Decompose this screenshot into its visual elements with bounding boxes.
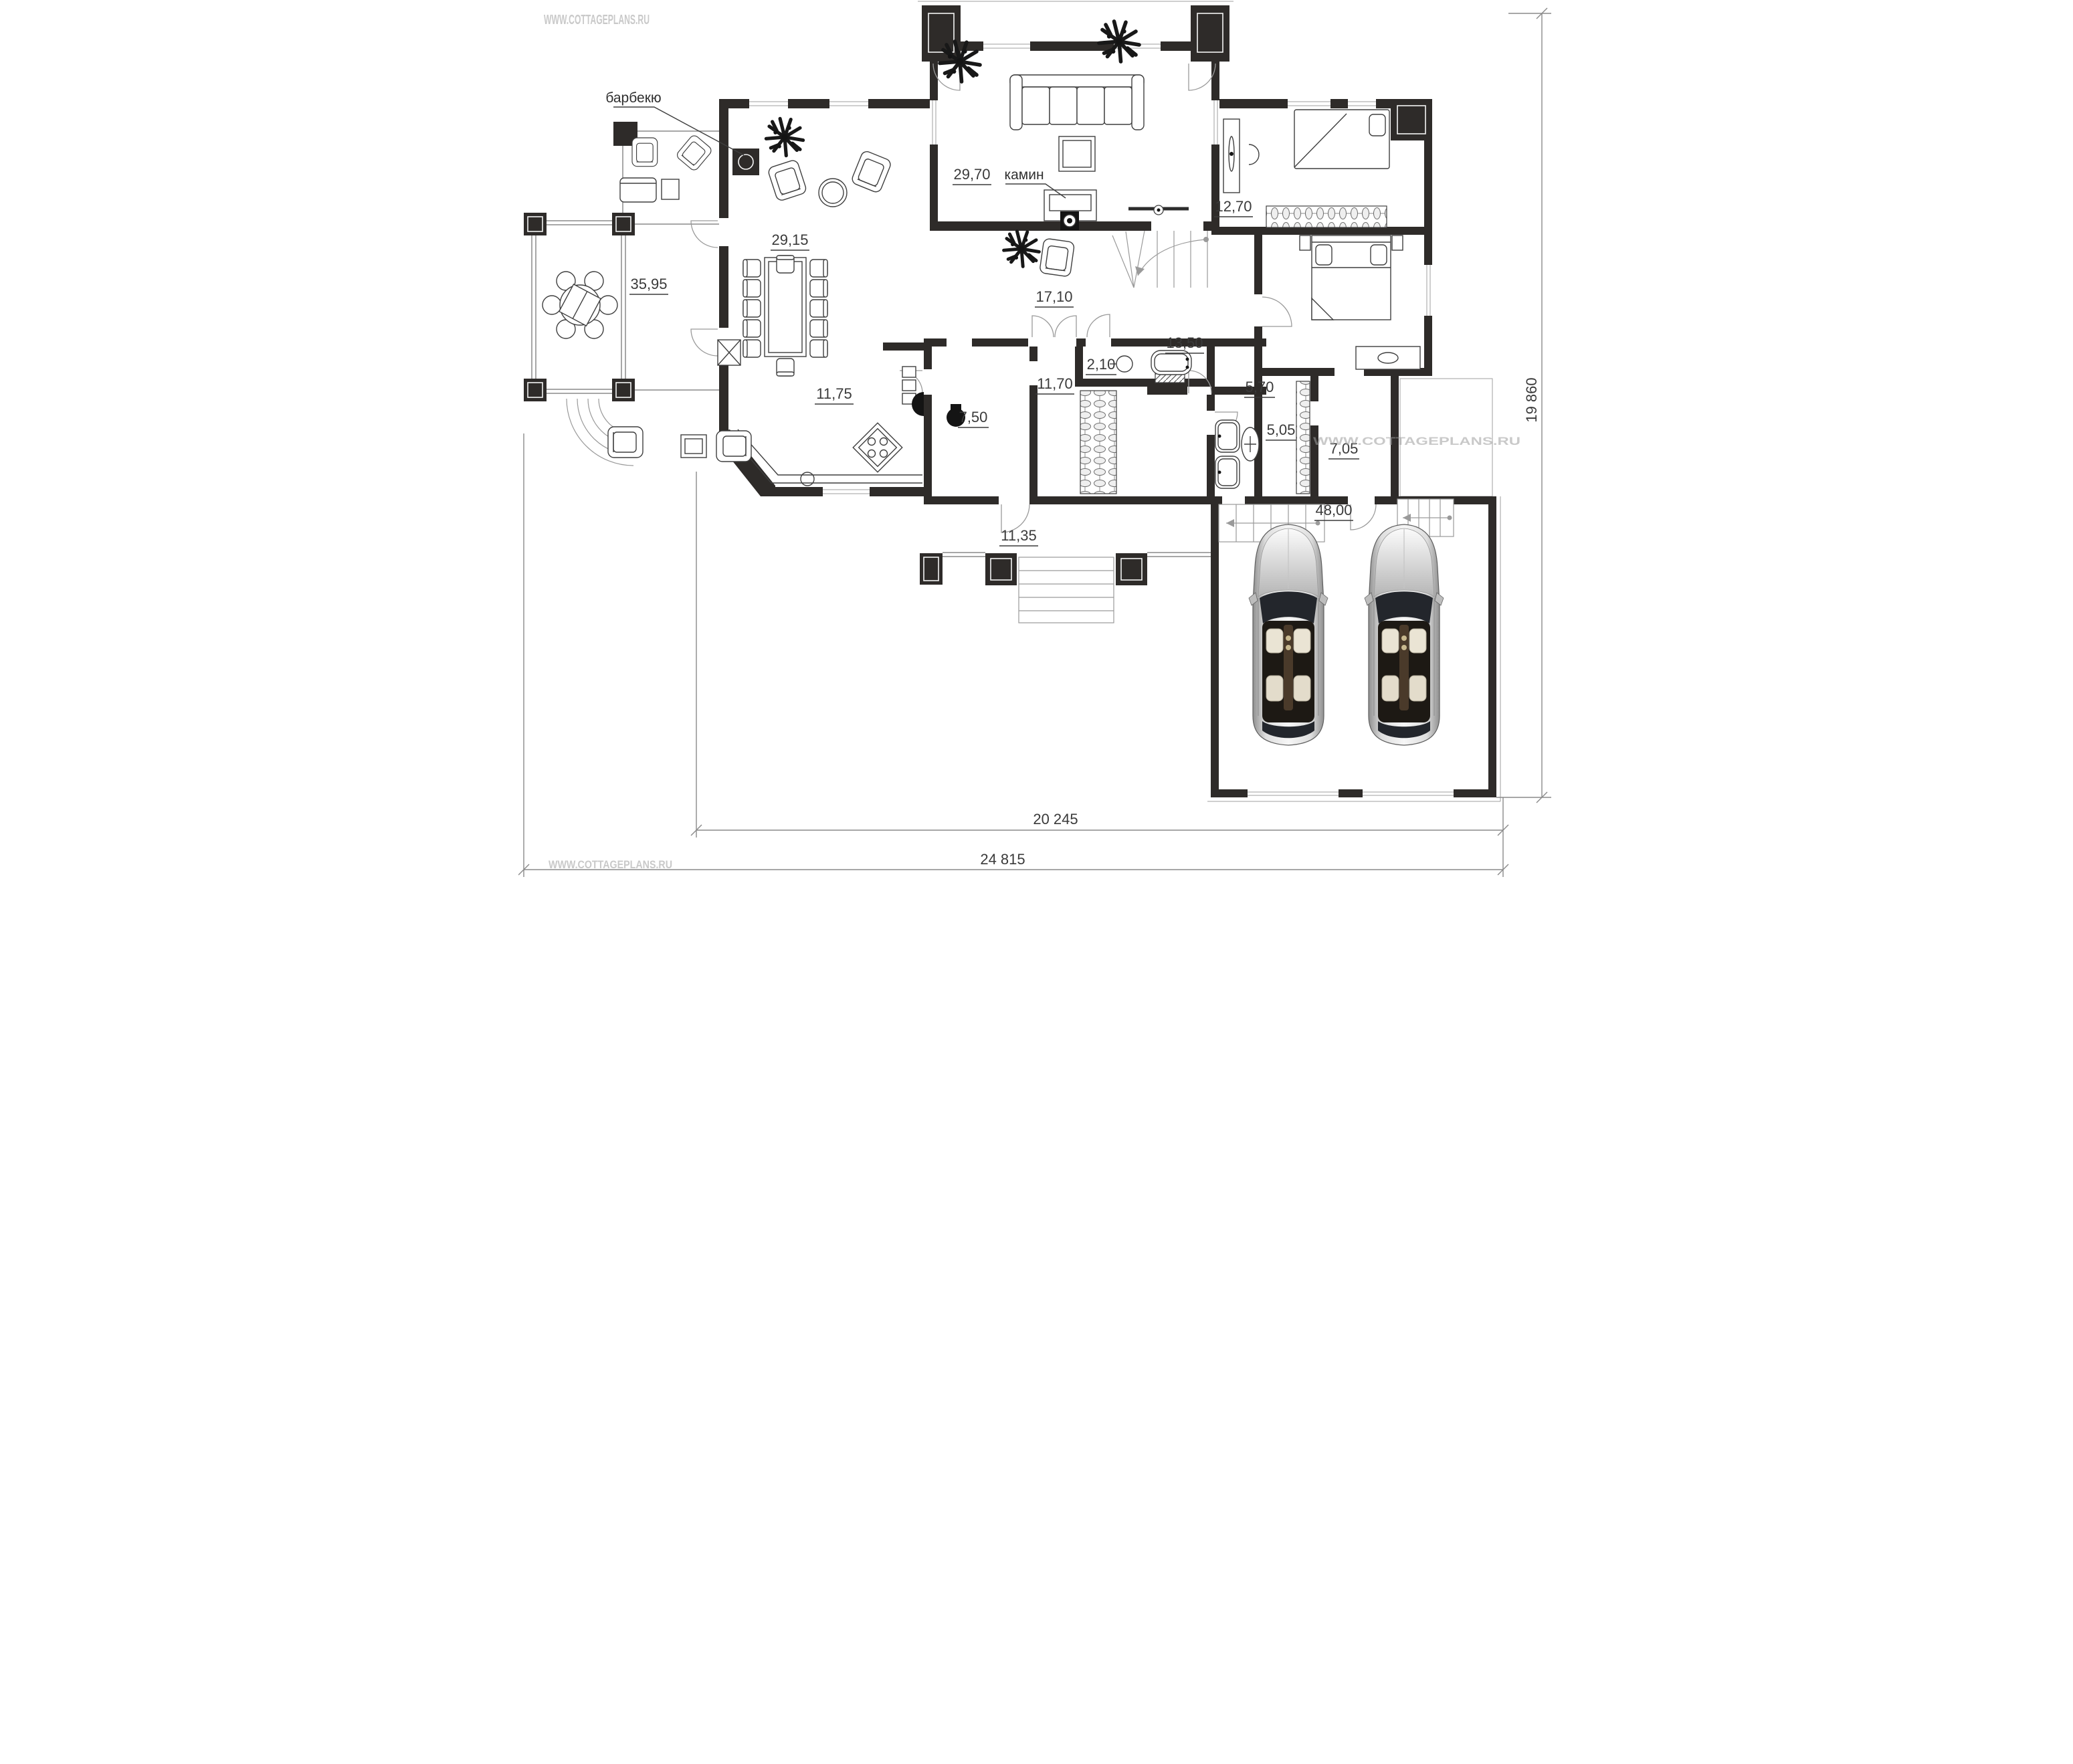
room-area-garage: 48,00 bbox=[1314, 502, 1353, 520]
svg-text:11,75: 11,75 bbox=[816, 385, 852, 402]
bedroom-furniture bbox=[1155, 235, 1420, 383]
barbecue-terrace-furniture bbox=[620, 134, 713, 202]
room-area-music-room: 29,70 bbox=[953, 166, 991, 185]
garage-contents bbox=[1219, 504, 1444, 745]
room-area-wc: 2,10 bbox=[1086, 356, 1116, 375]
sink-cabinet bbox=[718, 340, 741, 365]
stove bbox=[853, 423, 902, 472]
single-bed bbox=[1294, 110, 1389, 169]
dimension-outer-width-value: 24 815 bbox=[980, 851, 1025, 868]
watermark-top-left: WWW.COTTAGEPLANS.RU bbox=[544, 13, 650, 27]
bathroom-fixtures bbox=[1215, 420, 1259, 488]
main-staircase bbox=[1112, 231, 1209, 288]
room-area-corridor: 5,05 bbox=[1266, 421, 1296, 440]
room-area-utility: 11,70 bbox=[1035, 375, 1074, 394]
living-dining-furniture bbox=[743, 118, 892, 376]
double-bed bbox=[1312, 235, 1391, 320]
svg-text:11,70: 11,70 bbox=[1037, 375, 1072, 392]
outdoor-table bbox=[662, 179, 679, 199]
garden-seating bbox=[608, 427, 751, 462]
svg-text:11,35: 11,35 bbox=[1001, 527, 1036, 544]
corridor-wardrobe bbox=[1296, 381, 1310, 494]
wc-fixtures bbox=[1110, 351, 1191, 375]
dimension-inner-width-value: 20 245 bbox=[1033, 811, 1078, 827]
svg-text:2,10: 2,10 bbox=[1086, 356, 1115, 373]
svg-text:17,10: 17,10 bbox=[1035, 288, 1072, 305]
room-area-bathroom: 5,70 bbox=[1244, 379, 1275, 397]
svg-text:5,70: 5,70 bbox=[1245, 379, 1274, 395]
room-area-bedroom: 13,50 bbox=[1165, 334, 1204, 353]
tv-unit bbox=[1128, 205, 1189, 215]
dimension-right-height-value: 19 860 bbox=[1523, 377, 1540, 422]
fireplace-label: камин bbox=[1004, 167, 1044, 183]
plant-icon bbox=[1003, 231, 1039, 267]
floor-plan-cottage: барбекю камин 29,70 12,70 29,15 35,95 17… bbox=[518, 0, 1555, 882]
outdoor-sofa bbox=[620, 178, 656, 202]
dresser bbox=[1356, 347, 1420, 369]
coffee-table bbox=[1059, 136, 1095, 171]
dimension-right-height: 19 860 bbox=[1496, 8, 1551, 803]
car-2 bbox=[1365, 524, 1444, 745]
hall-furniture bbox=[1039, 231, 1208, 288]
svg-text:7,50: 7,50 bbox=[959, 409, 987, 425]
nightstand bbox=[1300, 235, 1310, 250]
gazebo-table-set bbox=[542, 272, 617, 338]
round-coffee-table bbox=[819, 179, 847, 207]
watermark-bottom-left: WWW.COTTAGEPLANS.RU bbox=[549, 858, 672, 871]
barbecue-label: барбекю bbox=[605, 90, 661, 106]
dining-table-set bbox=[743, 256, 827, 376]
nightstand bbox=[1392, 235, 1403, 250]
wardrobe bbox=[1266, 206, 1387, 227]
room-area-study: 12,70 bbox=[1214, 198, 1253, 217]
svg-text:5,05: 5,05 bbox=[1266, 421, 1295, 438]
room-area-hall: 17,10 bbox=[1035, 288, 1074, 307]
svg-text:48,00: 48,00 bbox=[1315, 502, 1352, 518]
drawing-sheet: барбекю камин 29,70 12,70 29,15 35,95 17… bbox=[518, 0, 1555, 882]
svg-text:12,70: 12,70 bbox=[1215, 198, 1252, 215]
svg-text:13,50: 13,50 bbox=[1166, 334, 1203, 351]
plant-icon bbox=[766, 118, 803, 155]
room-area-south-terrace: 11,35 bbox=[999, 527, 1038, 546]
watermark-middle-right: WWW.COTTAGEPLANS.RU bbox=[1313, 435, 1520, 448]
room-area-living-dining: 29,15 bbox=[771, 231, 809, 250]
washbasin bbox=[1116, 356, 1132, 372]
portico-steps bbox=[1019, 557, 1114, 623]
svg-text:29,70: 29,70 bbox=[953, 166, 990, 183]
car-1 bbox=[1249, 524, 1328, 745]
laundry-wardrobe bbox=[1080, 391, 1116, 494]
desk-chair bbox=[1249, 144, 1259, 165]
svg-text:35,95: 35,95 bbox=[630, 276, 667, 292]
kitchen-sink bbox=[801, 472, 814, 486]
room-area-gazebo-terrace: 35,95 bbox=[629, 276, 668, 294]
room-area-pantry: 7,50 bbox=[958, 409, 989, 427]
svg-text:29,15: 29,15 bbox=[771, 231, 808, 248]
room-area-kitchen: 11,75 bbox=[815, 385, 854, 404]
